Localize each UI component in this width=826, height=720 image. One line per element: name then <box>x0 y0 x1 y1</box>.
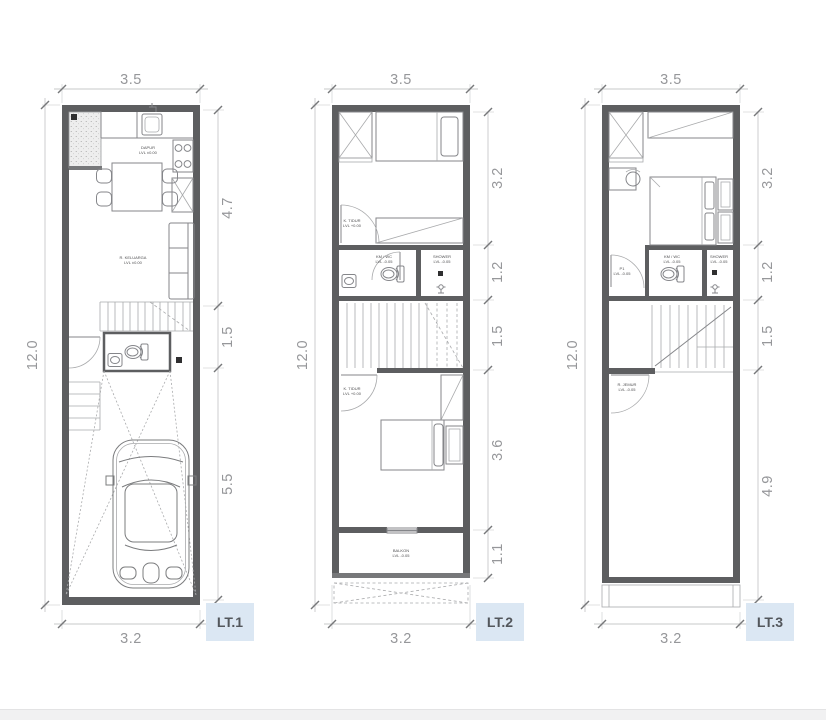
sofa-icon <box>169 223 194 299</box>
bed-icon <box>650 177 716 245</box>
shaft-box <box>339 112 372 162</box>
dim-left-value: 12.0 <box>565 340 581 370</box>
bathroom: KM / WC LVL -0.05 SHOWER LVL -0.05 <box>342 250 451 296</box>
dimension-left: 12.0 <box>295 98 330 612</box>
badge-label: LT.2 <box>487 614 513 630</box>
sink-icon <box>342 275 356 288</box>
dimension-top: 3.5 <box>54 72 208 103</box>
floor-drain <box>176 357 182 363</box>
laundry-room: R. JEMUR LVL -0.05 <box>611 375 649 413</box>
dim-right-value: 1.2 <box>490 261 506 283</box>
chair-icon <box>97 192 112 206</box>
dimension-right: 3.2 1.2 1.5 4.9 <box>743 108 776 604</box>
chair-icon <box>97 169 112 183</box>
floor-plan-sheet: 3.5 12.0 4.7 1.5 5.5 3.2 <box>0 0 826 720</box>
chair-icon <box>163 169 178 183</box>
dim-right-value: 3.6 <box>490 439 506 461</box>
toilet-icon <box>381 266 404 282</box>
door-label-level: LVL -0.05 <box>614 271 632 276</box>
room-label-kitchen-level: LVL ±0.00 <box>139 150 158 155</box>
stove-icon <box>173 140 193 172</box>
badge-label: LT.3 <box>757 614 783 630</box>
room-label-balcony-level: LVL -0.05 <box>393 553 411 558</box>
dim-right-value: 3.2 <box>760 167 776 189</box>
walls <box>332 105 470 578</box>
bed-icon <box>376 112 463 161</box>
bedroom <box>609 112 733 245</box>
bathroom: P1 LVL -0.05 KM / WC LVL -0.05 SHOWER LV… <box>611 254 728 293</box>
dim-right-value: 3.2 <box>490 167 506 189</box>
nightstand-icon <box>446 426 463 464</box>
textured-pad <box>69 112 102 170</box>
door-arc <box>611 375 649 413</box>
dimension-bottom: 3.2 <box>324 585 478 647</box>
chair-icon <box>626 170 640 187</box>
dim-right-value: 4.9 <box>760 475 776 497</box>
dim-top-value: 3.5 <box>390 72 412 88</box>
wardrobe-icon <box>648 112 733 138</box>
dimension-bottom: 3.2 <box>594 612 748 647</box>
dimension-right: 4.7 1.5 5.5 <box>203 106 236 604</box>
badge-lt3: LT.3 <box>746 603 794 641</box>
room-label-shower-level: LVL -0.05 <box>711 259 729 264</box>
dim-bottom-value: 3.2 <box>390 631 412 647</box>
dim-bottom-value: 3.2 <box>660 631 682 647</box>
canopy <box>334 583 468 603</box>
floor-plan-drawing: 3.5 12.0 4.7 1.5 5.5 3.2 <box>0 0 826 710</box>
room-label-living-level: LVL ±0.00 <box>124 260 143 265</box>
page-bottom-bar <box>0 709 826 720</box>
balcony: BALKON LVL -0.05 <box>387 528 417 558</box>
dimension-top: 3.5 <box>594 72 748 103</box>
faucet-icon <box>711 285 720 293</box>
dimension-top: 3.5 <box>324 72 478 103</box>
floor-plan-lt1: 3.5 12.0 4.7 1.5 5.5 3.2 <box>25 72 254 647</box>
dim-right-value: 1.5 <box>490 325 506 347</box>
dim-right-value: 1.5 <box>220 326 236 348</box>
toilet-icon <box>661 266 684 282</box>
dimension-right: 3.2 1.2 1.5 3.6 1.1 <box>473 108 506 582</box>
room-label-bath-level: LVL -0.05 <box>376 259 394 264</box>
badge-label: LT.1 <box>217 614 243 630</box>
dimension-left: 12.0 <box>565 98 600 612</box>
desk-icon <box>609 168 636 190</box>
wardrobe-icon <box>376 218 463 243</box>
bedroom-1: K. TIDUR LVL +0.00 <box>339 112 463 243</box>
parapet <box>602 585 740 607</box>
room-label-bedroom2-level: LVL +0.00 <box>343 391 362 396</box>
room-label-laundry-level: LVL -0.05 <box>619 387 637 392</box>
floor-plan-lt2: 3.5 12.0 3.2 1.2 1.5 3.6 1.1 3.2 <box>295 72 524 647</box>
room-label-bedroom1-level: LVL +0.00 <box>343 223 362 228</box>
shaft-box <box>609 112 643 162</box>
badge-lt1: LT.1 <box>206 603 254 641</box>
floor-drain <box>712 270 717 275</box>
staircase <box>100 302 193 331</box>
dim-right-value: 1.1 <box>490 543 506 565</box>
dimension-bottom: 3.2 <box>54 610 208 647</box>
dimension-left: 12.0 <box>25 98 60 612</box>
shaft-box <box>172 178 193 212</box>
dining-table <box>97 163 178 211</box>
room-label-shower-level: LVL -0.05 <box>434 259 452 264</box>
floor-drain <box>438 271 443 276</box>
dim-left-value: 12.0 <box>25 340 41 370</box>
dim-right-value: 1.5 <box>760 325 776 347</box>
chair-icon <box>163 192 178 206</box>
bed-icon <box>381 420 444 470</box>
dim-top-value: 3.5 <box>660 72 682 88</box>
badge-lt2: LT.2 <box>476 603 524 641</box>
wardrobe-icon <box>441 375 463 420</box>
faucet-icon <box>437 285 446 293</box>
bedroom-2: K. TIDUR LVL +0.00 <box>341 375 463 470</box>
room-label-bath-level: LVL -0.05 <box>664 259 682 264</box>
floor-plan-lt3: 3.5 12.0 3.2 1.2 1.5 4.9 3.2 <box>565 72 794 647</box>
dim-left-value: 12.0 <box>295 340 311 370</box>
kitchen-counter: DAPUR LVL ±0.00 <box>101 103 193 212</box>
dim-right-value: 1.2 <box>760 261 776 283</box>
dim-top-value: 3.5 <box>120 72 142 88</box>
staircase <box>652 305 733 368</box>
dim-bottom-value: 3.2 <box>120 631 142 647</box>
nightstand-icon <box>718 179 733 243</box>
car-icon <box>106 440 196 588</box>
dim-right-value: 5.5 <box>220 473 236 495</box>
door-arc <box>69 337 100 368</box>
bathroom <box>104 333 182 371</box>
staircase <box>347 303 463 368</box>
dim-right-value: 4.7 <box>220 197 236 219</box>
